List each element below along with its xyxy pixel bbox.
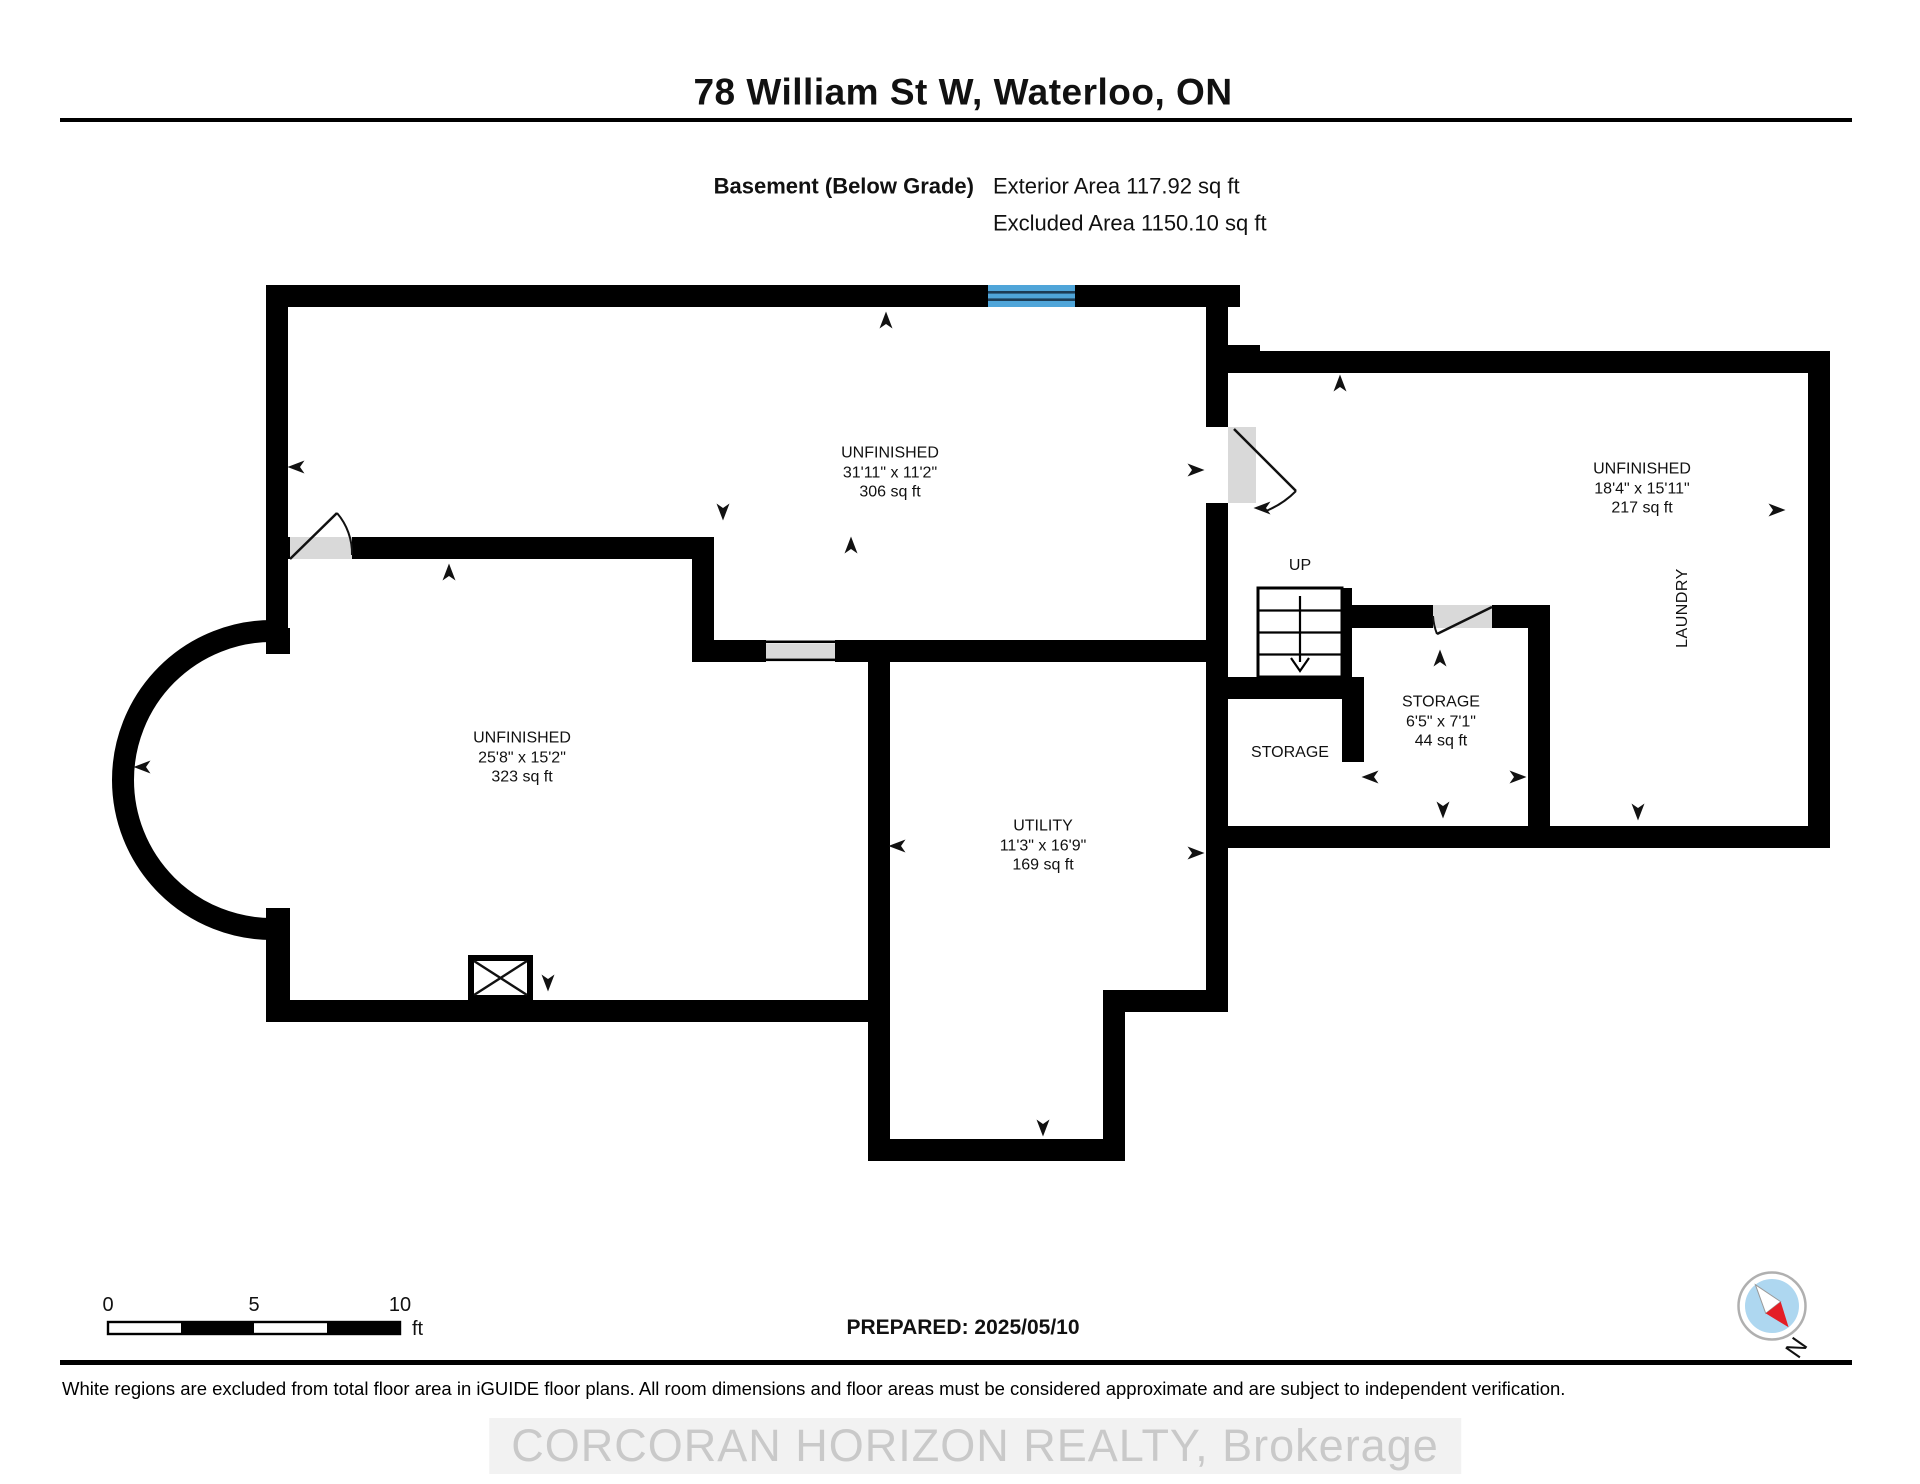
page-title: 78 William St W, Waterloo, ON xyxy=(693,69,1232,114)
laundry-label: LAUNDRY xyxy=(1673,568,1693,648)
storage-left-label: STORAGE xyxy=(1251,743,1329,763)
scale-tick-10: 10 xyxy=(389,1293,411,1317)
floor-plan-page: 78 William St W, Waterloo, ON Basement (… xyxy=(0,0,1920,1484)
bay-window-arc xyxy=(123,631,272,929)
room-dims: 11'3" x 16'9" xyxy=(1000,836,1087,856)
room-name: UNFINISHED xyxy=(473,729,571,749)
room-label-unfinished-left: UNFINISHED 25'8" x 15'2" 323 sq ft xyxy=(473,729,571,788)
room-dims: 25'8" x 15'2" xyxy=(473,748,571,768)
exterior-area: Exterior Area 117.92 sq ft xyxy=(993,174,1240,201)
room-dims: 6'5" x 7'1" xyxy=(1402,712,1480,732)
footer-disclaimer: White regions are excluded from total fl… xyxy=(62,1378,1565,1400)
room-area: 217 sq ft xyxy=(1593,499,1691,519)
chimney xyxy=(471,958,530,998)
room-label-utility: UTILITY 11'3" x 16'9" 169 sq ft xyxy=(1000,817,1087,876)
room-area: 44 sq ft xyxy=(1402,732,1480,752)
stairs xyxy=(1258,588,1342,677)
opening-sill xyxy=(766,641,835,662)
prepared-date: PREPARED: 2025/05/10 xyxy=(846,1315,1079,1341)
floor-label: Basement (Below Grade) xyxy=(714,174,974,201)
room-label-unfinished-top: UNFINISHED 31'11" x 11'2" 306 sq ft xyxy=(841,444,939,503)
excluded-area: Excluded Area 1150.10 sq ft xyxy=(993,211,1267,238)
walls xyxy=(266,285,1830,1161)
room-label-storage-small: STORAGE 6'5" x 7'1" 44 sq ft xyxy=(1402,693,1480,752)
scale-tick-0: 0 xyxy=(102,1293,113,1317)
room-name: STORAGE xyxy=(1402,693,1480,713)
room-dims: 31'11" x 11'2" xyxy=(841,463,939,483)
room-area: 323 sq ft xyxy=(473,768,571,788)
floor-plan-canvas xyxy=(0,0,1920,1484)
room-name: UTILITY xyxy=(1000,817,1087,837)
room-name: UNFINISHED xyxy=(1593,460,1691,480)
scale-unit: ft xyxy=(412,1317,423,1341)
room-area: 306 sq ft xyxy=(841,483,939,503)
scale-tick-5: 5 xyxy=(248,1293,259,1317)
door-hallway xyxy=(1206,427,1296,511)
room-name: UNFINISHED xyxy=(841,444,939,464)
scale-bar-graphic xyxy=(108,1322,400,1334)
door-left-room xyxy=(290,513,352,559)
room-area: 169 sq ft xyxy=(1000,856,1087,876)
door-storage xyxy=(1433,605,1492,634)
room-dims: 18'4" x 15'11" xyxy=(1593,479,1691,499)
window xyxy=(988,285,1075,307)
room-label-unfinished-right: UNFINISHED 18'4" x 15'11" 217 sq ft xyxy=(1593,460,1691,519)
brokerage-watermark: CORCORAN HORIZON REALTY, Brokerage xyxy=(489,1418,1461,1474)
stairs-up-label: UP xyxy=(1289,556,1311,576)
compass-icon xyxy=(1739,1273,1806,1340)
